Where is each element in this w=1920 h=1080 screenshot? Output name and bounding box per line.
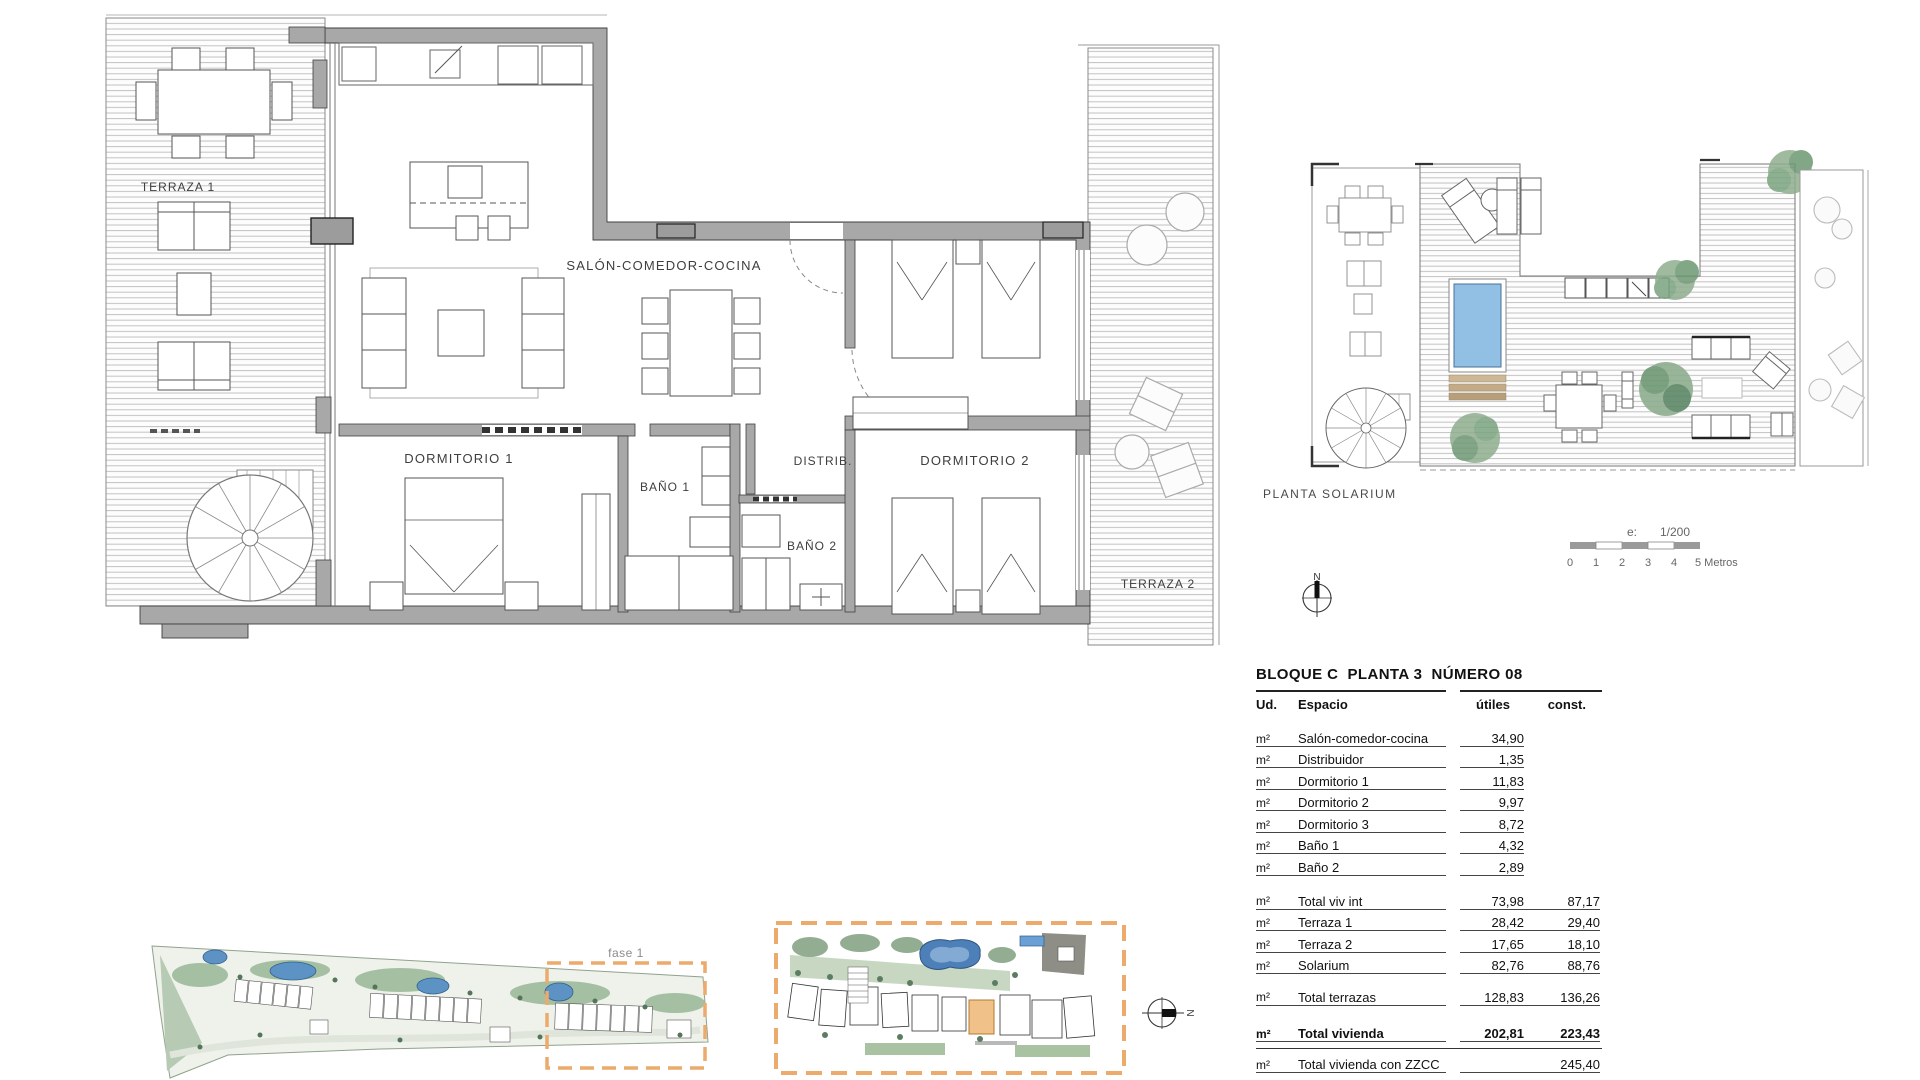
cell-utiles: 202,81 [1460,1026,1524,1042]
cell-espacio: Salón-comedor-cocina [1298,731,1446,746]
cell-const: 29,40 [1524,915,1600,931]
stairs-lines [848,967,868,1003]
cell-utiles: 17,65 [1460,937,1524,953]
cell-ud: m² [1256,990,1298,1004]
col-ud: Ud. [1256,697,1298,712]
cell-utiles: 1,35 [1460,752,1524,768]
kitchen-units [339,43,593,85]
cell-const: 136,26 [1524,990,1600,1006]
cell-utiles: 73,98 [1460,894,1524,910]
cell-espacio: Dormitorio 3 [1298,817,1446,832]
cell-ud: m² [1256,959,1298,973]
cell-utiles: 8,72 [1460,817,1524,833]
dormitorio3-furniture [892,240,1040,358]
cell-utiles: 9,97 [1460,795,1524,811]
site-plan-detail: N [770,915,1200,1080]
cell-utiles: 11,83 [1460,774,1524,790]
table-row: m²Distribuidor 1,35 [1256,747,1602,769]
cell-utiles [1460,1072,1524,1073]
table-row: m²Salón-comedor-cocina 34,90 [1256,725,1602,747]
fase1-label: fase 1 [608,946,644,960]
label-dormitorio1: DORMITORIO 1 [404,451,514,466]
label-distrib: DISTRIB. [794,454,853,468]
cell-espacio: Dormitorio 2 [1298,795,1446,810]
cell-const: 223,43 [1524,1026,1600,1042]
table-row: m²Terraza 2 17,6518,10 [1256,931,1602,953]
cell-ud: m² [1256,753,1298,767]
table-row-total: m²Total vivienda 202,81223,43 [1256,1014,1602,1042]
cell-ud: m² [1256,839,1298,853]
scale-tick-4: 4 [1671,557,1677,569]
col-const: const. [1510,697,1586,712]
cell-espacio: Total viv int [1298,894,1446,909]
highlighted-unit [969,1000,994,1034]
cell-const: 87,17 [1524,894,1600,910]
cell-espacio: Distribuidor [1298,752,1446,767]
table-row: m²Dormitorio 1 11,83 [1256,768,1602,790]
site-plan-overview: fase 1 [140,935,740,1080]
cell-ud: m² [1256,916,1298,930]
cell-espacio: Total vivienda con ZZCC [1298,1057,1446,1072]
cell-ud: m² [1256,732,1298,746]
cell-ud: m² [1256,1027,1298,1041]
label-terraza2: TERRAZA 2 [1121,577,1195,591]
table-header: Ud. Espacio útiles const. [1256,697,1602,712]
solarium-title: PLANTA SOLARIUM [1263,487,1397,501]
label-bano1: BAÑO 1 [640,480,690,494]
label-salon: SALÓN-COMEDOR-COCINA [566,258,761,273]
label-dormitorio2: DORMITORIO 2 [920,453,1030,468]
cell-espacio: Baño 2 [1298,860,1446,875]
scale-prefix: e: [1627,525,1637,539]
table-row: m²Baño 2 2,89 [1256,854,1602,876]
terraza2-deck [1078,45,1219,645]
table-row: m²Total viv int 73,9887,17 [1256,886,1602,910]
cell-ud: m² [1256,775,1298,789]
col-utiles: útiles [1446,697,1510,712]
cell-utiles: 34,90 [1460,731,1524,747]
cell-espacio: Total vivienda [1298,1026,1446,1041]
cell-espacio: Terraza 1 [1298,915,1446,930]
solarium-right-terrace [1800,170,1868,466]
cell-const: 88,76 [1524,958,1600,974]
solarium-plan: PLANTA SOLARIUM e: 1/200 0 1 2 3 4 5 Met… [1255,130,1920,640]
cell-utiles: 4,32 [1460,838,1524,854]
cell-ud: m² [1256,894,1298,908]
cell-espacio: Solarium [1298,958,1446,973]
cell-espacio: Total terrazas [1298,990,1446,1005]
label-terraza1: TERRAZA 1 [141,180,215,194]
cell-ud: m² [1256,818,1298,832]
cell-utiles: 82,76 [1460,958,1524,974]
north-label: N [1184,1009,1195,1016]
col-espacio: Espacio [1298,697,1446,712]
table-row: m²Total terrazas 128,83136,26 [1256,982,1602,1006]
table-title-rule [1256,690,1602,692]
main-floor-plan: TERRAZA 1 SALÓN-COMEDOR-COCINA DORMITORI… [90,0,1250,660]
table-row: m²Terraza 1 28,4229,40 [1256,910,1602,932]
table-rows: m²Salón-comedor-cocina 34,90 m²Distribui… [1256,725,1602,1073]
kitchen-island [410,162,528,240]
plan-sheet: { "plan": { "labels": { "terraza1": "TER… [0,0,1920,1080]
scale-tick-3: 3 [1645,557,1651,569]
solarium-pergola-row [1565,278,1669,298]
cell-utiles: 28,42 [1460,915,1524,931]
cell-utiles: 2,89 [1460,860,1524,876]
cell-ud: m² [1256,938,1298,952]
scale-ratio: 1/200 [1660,525,1690,539]
cell-const: 245,40 [1524,1057,1600,1073]
cell-const: 18,10 [1524,937,1600,953]
scale-tick-5: 5 Metros [1695,557,1738,569]
scale-tick-1: 1 [1593,557,1599,569]
solarium-pool [1449,279,1506,400]
cell-espacio: Terraza 2 [1298,937,1446,952]
label-bano2: BAÑO 2 [787,539,837,553]
cell-ud: m² [1256,796,1298,810]
scale-bar: e: 1/200 0 1 2 3 4 5 Metros [1567,525,1738,569]
table-row: m²Dormitorio 3 8,72 [1256,811,1602,833]
area-table: BLOQUE C PLANTA 3 NÚMERO 08 Ud. Espacio … [1256,666,1602,1073]
table-row: m²Baño 1 4,32 [1256,833,1602,855]
dormitorio1-furniture [370,478,610,610]
north-arrow-horizontal-icon: N [1142,997,1195,1029]
table-row: m²Dormitorio 2 9,97 [1256,790,1602,812]
table-title: BLOQUE C PLANTA 3 NÚMERO 08 [1256,666,1602,683]
table-row-clipped: m²Total vivienda con ZZCC 245,40 [1256,1048,1602,1073]
cell-ud: m² [1256,861,1298,875]
table-row: m²Solarium 82,7688,76 [1256,953,1602,975]
cell-utiles: 128,83 [1460,990,1524,1006]
cell-espacio: Baño 1 [1298,838,1446,853]
cell-espacio: Dormitorio 1 [1298,774,1446,789]
dining-table [642,290,760,396]
north-arrow-icon: N [1302,572,1332,617]
scale-tick-0: 0 [1567,557,1573,569]
cell-ud: m² [1256,1058,1298,1072]
living-furniture [362,268,564,398]
scale-tick-2: 2 [1619,557,1625,569]
